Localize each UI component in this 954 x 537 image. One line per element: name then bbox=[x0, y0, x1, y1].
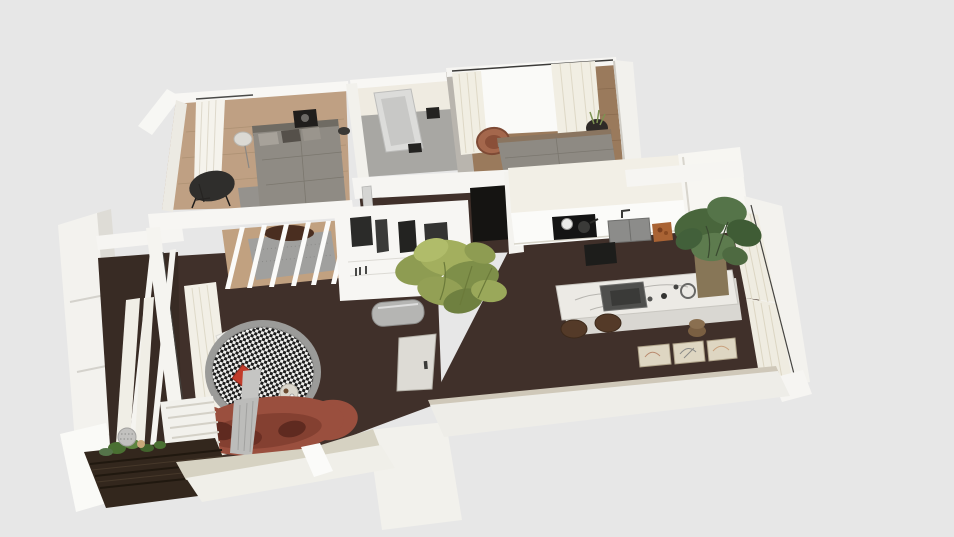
pouf-top bbox=[689, 319, 705, 329]
cutting-board bbox=[652, 222, 673, 242]
bed1-pillow-3 bbox=[302, 127, 321, 141]
cutting-board-food-2 bbox=[664, 231, 668, 235]
dishwasher bbox=[584, 242, 617, 266]
deck-plant-4 bbox=[99, 448, 113, 456]
wardrobe-clothes-2 bbox=[375, 219, 389, 253]
bedroom2-window bbox=[479, 62, 560, 135]
island-item-2 bbox=[648, 297, 653, 302]
floor-plan-3d-render bbox=[0, 0, 954, 537]
tray-cup-1 bbox=[284, 389, 289, 394]
bath-item-1 bbox=[426, 107, 440, 119]
cooktop-pan bbox=[578, 221, 590, 233]
metal-bench bbox=[371, 299, 425, 327]
island-item-3 bbox=[674, 285, 679, 290]
wardrobe-clothes-1 bbox=[350, 216, 373, 247]
cooktop-dish bbox=[562, 219, 573, 230]
outer-corner-white bbox=[368, 422, 462, 530]
bed1-pillow-2 bbox=[281, 129, 301, 143]
cutting-board-food-1 bbox=[658, 228, 663, 233]
deck-plant-5 bbox=[154, 441, 166, 449]
bar-stool-2 bbox=[595, 314, 621, 332]
floor-lamp-shade bbox=[234, 132, 252, 146]
picture-frame-3 bbox=[707, 338, 737, 361]
side-table bbox=[338, 127, 350, 135]
cooktop bbox=[552, 214, 597, 240]
bed1-pillow-1 bbox=[258, 132, 279, 146]
open-door-leaf bbox=[397, 334, 436, 391]
bath-item-2 bbox=[408, 143, 422, 153]
tan-ball-decor bbox=[137, 440, 145, 448]
door-handle bbox=[424, 361, 428, 369]
floor-plan-viewport bbox=[0, 0, 954, 537]
wardrobe-clothes-3 bbox=[398, 220, 417, 253]
bar-stool-1 bbox=[561, 320, 587, 338]
picture-frame-1 bbox=[638, 344, 671, 367]
island-cooktop-inner bbox=[610, 288, 641, 306]
island-item-1 bbox=[661, 293, 667, 299]
sphere-decor bbox=[118, 428, 136, 446]
wall-art-detail bbox=[301, 114, 309, 122]
